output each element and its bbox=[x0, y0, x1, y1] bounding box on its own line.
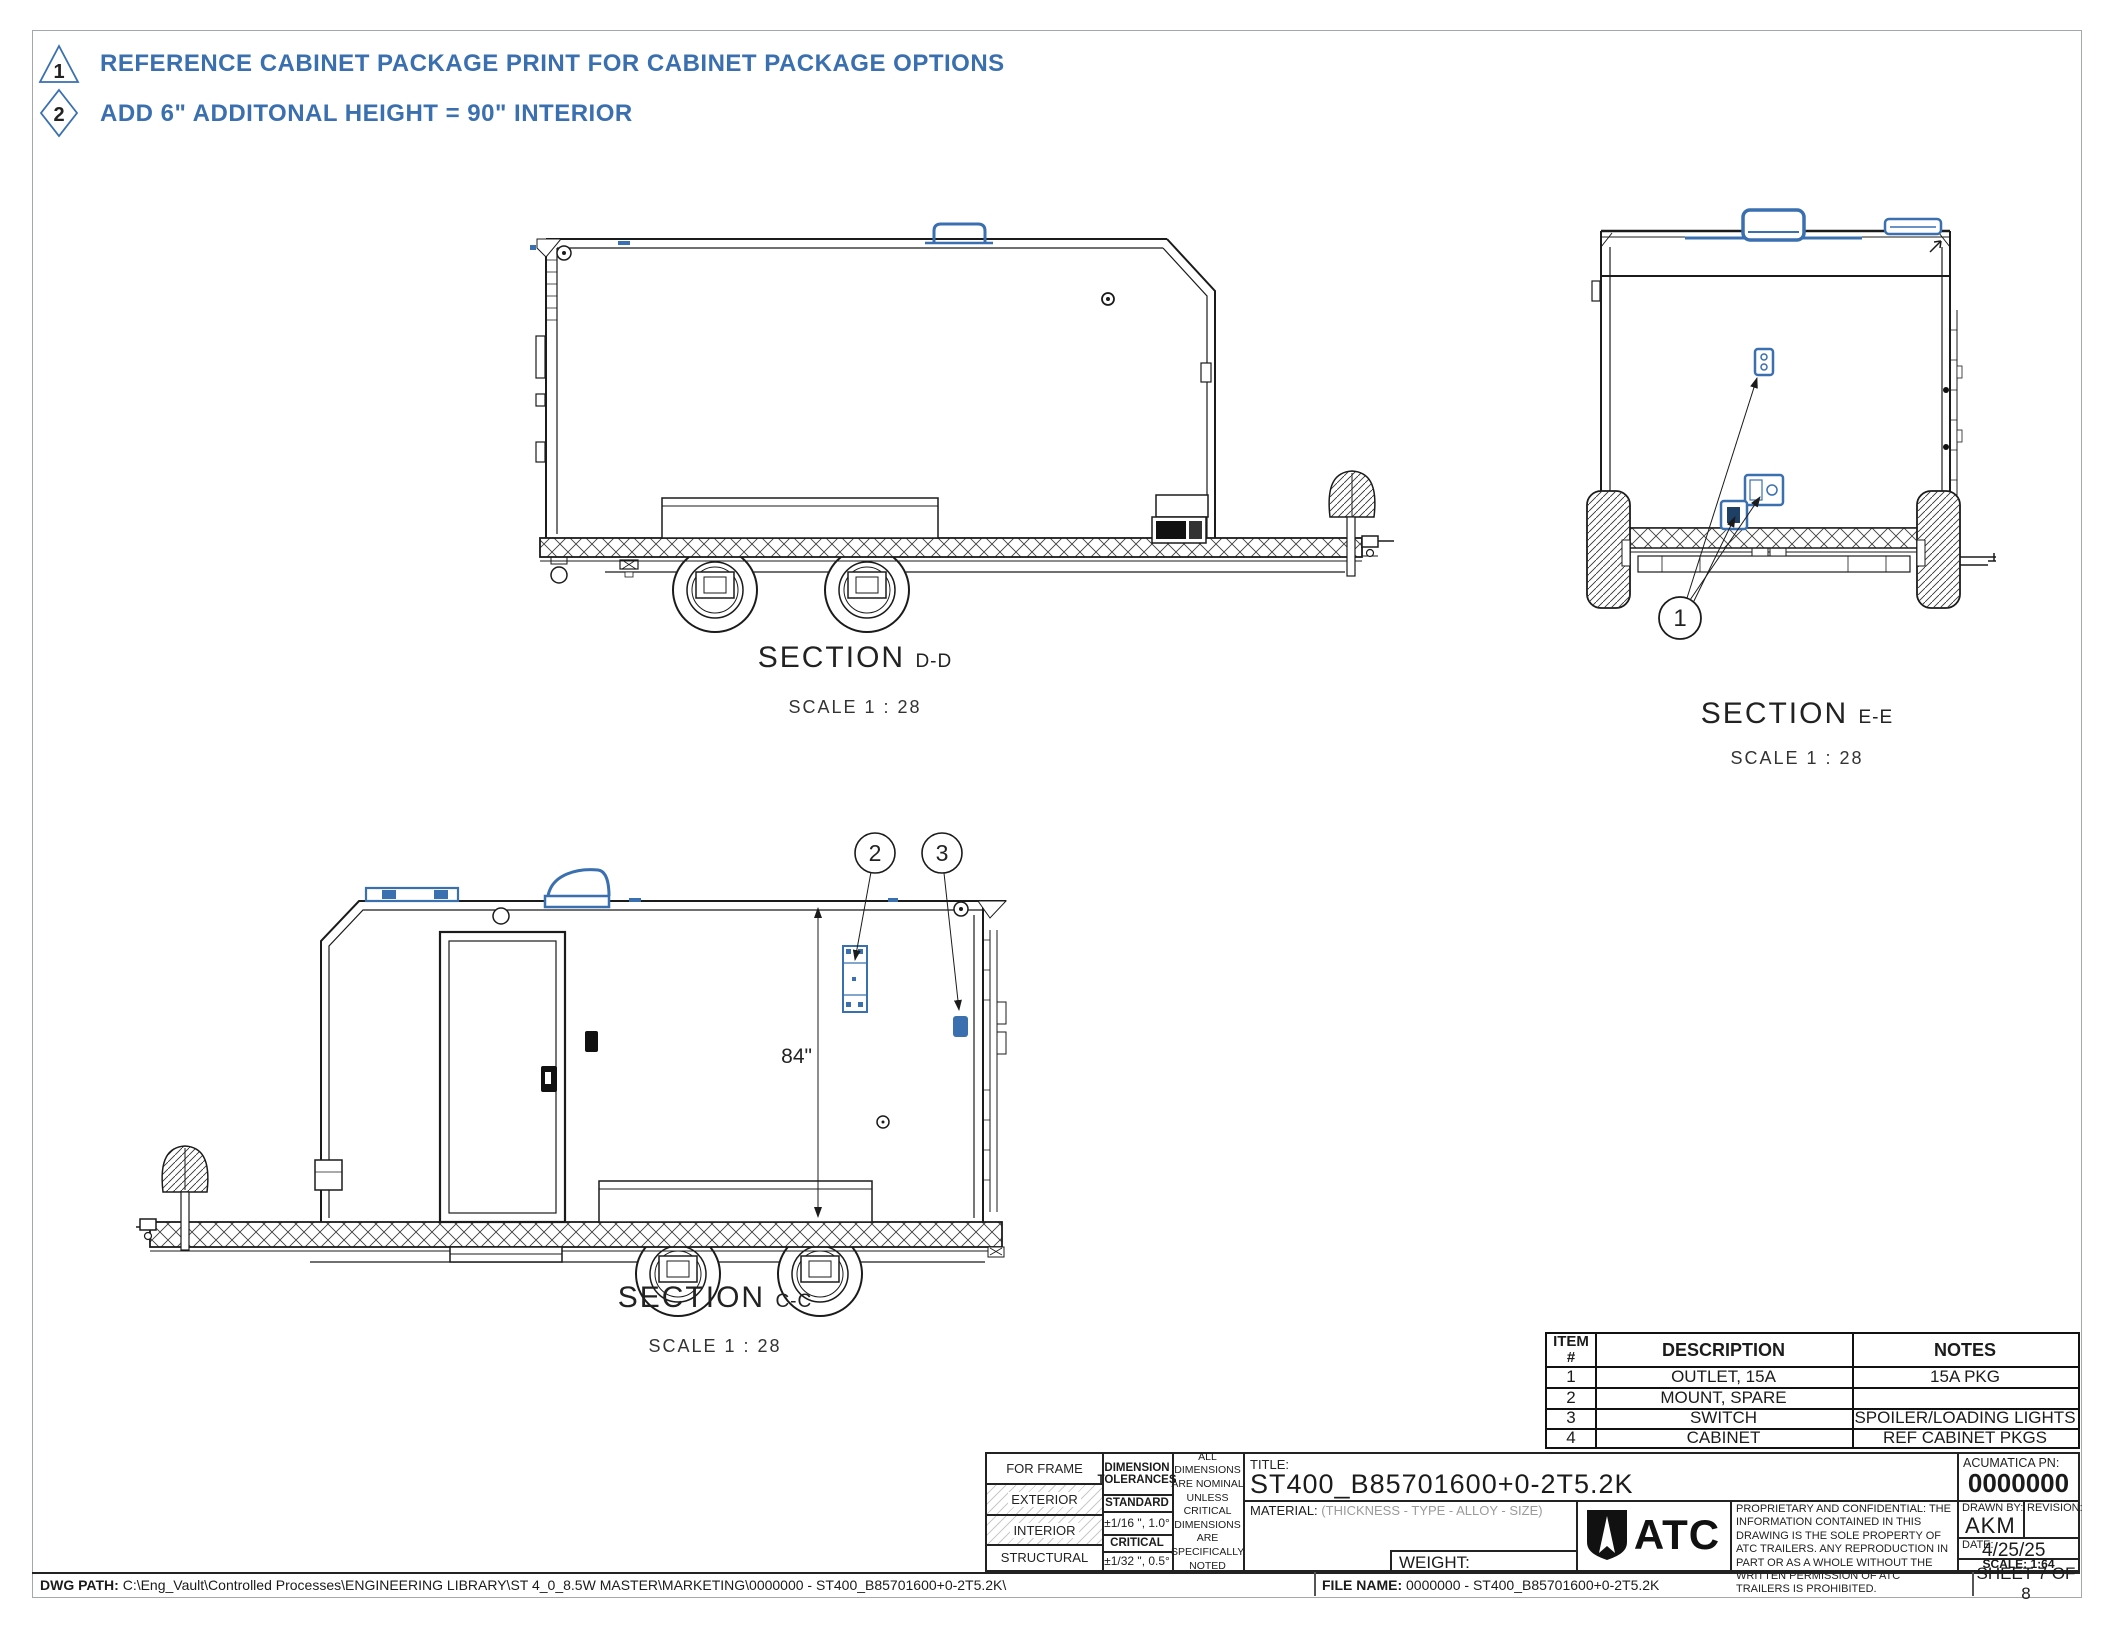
critical-tolerance-value: ±1/32 ", 0.5° bbox=[1102, 1551, 1172, 1570]
table-row-1-item: 1 bbox=[1547, 1366, 1595, 1387]
dimension-tolerances-header: DIMENSION TOLERANCES bbox=[1102, 1454, 1172, 1494]
axle-assembly bbox=[1610, 548, 1942, 572]
tongue-jack bbox=[1329, 471, 1375, 576]
section-ee-drawing: 1 bbox=[1565, 165, 2015, 660]
switch-icon bbox=[953, 1016, 968, 1037]
spare-mount-icon bbox=[843, 946, 867, 1012]
tolerance-row-for-frame: FOR FRAME bbox=[987, 1454, 1102, 1483]
flag-note-symbols: 1 2 bbox=[30, 38, 100, 148]
entry-door bbox=[440, 932, 565, 1262]
section-dd-label: SECTION D-D bbox=[735, 641, 975, 675]
table-row-4-item: 4 bbox=[1547, 1428, 1595, 1447]
item-table-header-notes: NOTES bbox=[1852, 1334, 2078, 1366]
floor-cabinet bbox=[599, 1181, 872, 1222]
section-cc-label: SECTION C-C bbox=[595, 1281, 835, 1315]
table-row-2-notes bbox=[1852, 1387, 2078, 1408]
atc-logo: ATC bbox=[1576, 1500, 1730, 1570]
nominal-dimensions-note: ALL DIMENSIONS ARE NOMINAL UNLESS CRITIC… bbox=[1172, 1454, 1243, 1570]
balloon-2-number: 2 bbox=[869, 840, 882, 866]
trailer-body-outline bbox=[546, 239, 1215, 538]
rear-caster-wheel bbox=[551, 567, 567, 583]
roof-cap-icon bbox=[1885, 219, 1941, 234]
right-wheel bbox=[1917, 491, 1960, 608]
rear-marker-light bbox=[530, 245, 536, 250]
material-row: MATERIAL: (THICKNESS - TYPE - ALLOY - SI… bbox=[1250, 1503, 1543, 1518]
title-block: FOR FRAME EXTERIOR INTERIOR STRUCTURAL D… bbox=[985, 1452, 2080, 1572]
proprietary-note: PROPRIETARY AND CONFIDENTIAL: THE INFORM… bbox=[1736, 1503, 1951, 1567]
leader-lines bbox=[855, 872, 959, 1010]
section-cc-scale: SCALE 1 : 28 bbox=[595, 1336, 835, 1357]
rear-door-frame bbox=[983, 930, 1006, 1257]
side-door-hardware bbox=[1950, 310, 1962, 520]
wall-outlet-icon bbox=[1755, 349, 1773, 375]
table-row-1-description: OUTLET, 15A bbox=[1595, 1366, 1852, 1387]
flag-note-1-number: 1 bbox=[53, 61, 64, 83]
file-name-value: 0000000 - ST400_B85701600+0-2T5.2K bbox=[1406, 1577, 1659, 1593]
corner-arrow-mark bbox=[1930, 241, 1941, 252]
standard-tolerance-label: STANDARD bbox=[1102, 1494, 1172, 1511]
front-wall-box bbox=[315, 1160, 342, 1190]
roof-vent-icon bbox=[925, 224, 993, 243]
loading-light-bar-icon bbox=[366, 888, 458, 901]
table-row-3-notes: SPOILER/LOADING LIGHTS bbox=[1852, 1408, 2078, 1428]
dwg-path-value: C:\Eng_Vault\Controlled Processes\ENGINE… bbox=[123, 1577, 1007, 1593]
table-row-4-notes: REF CABINET PKGS bbox=[1852, 1428, 2078, 1447]
section-ee-label: SECTION E-E bbox=[1677, 697, 1917, 731]
table-row-3-item: 3 bbox=[1547, 1408, 1595, 1428]
item-table: ITEM# DESCRIPTION NOTES 1 OUTLET, 15A 15… bbox=[1545, 1332, 2080, 1449]
roof-vent-open-icon bbox=[545, 870, 609, 907]
table-row-1-notes: 15A PKG bbox=[1852, 1366, 2078, 1387]
flag-note-2-text: ADD 6" ADDITONAL HEIGHT = 90" INTERIOR bbox=[100, 100, 633, 128]
critical-tolerance-label: CRITICAL bbox=[1102, 1534, 1172, 1551]
roof-vent-icon bbox=[1685, 210, 1862, 240]
floor-cabinet bbox=[662, 498, 938, 538]
table-row-2-description: MOUNT, SPARE bbox=[1595, 1387, 1852, 1408]
file-name-label: FILE NAME: bbox=[1322, 1577, 1402, 1593]
atc-shield-icon bbox=[1586, 1509, 1628, 1561]
floor-crosshatch bbox=[540, 538, 1362, 561]
atc-logo-text: ATC bbox=[1634, 1511, 1720, 1559]
material-label: MATERIAL: bbox=[1250, 1503, 1318, 1518]
drawing-sheet: 1 2 REFERENCE CABINET PACKAGE PRINT FOR … bbox=[0, 0, 2112, 1632]
material-value: (THICKNESS - TYPE - ALLOY - SIZE) bbox=[1321, 1503, 1542, 1518]
floor-crosshatch bbox=[150, 1222, 1002, 1251]
left-wheel bbox=[1587, 491, 1630, 608]
table-row-4-description: CABINET bbox=[1595, 1428, 1852, 1447]
dwg-path-label: DWG PATH: bbox=[40, 1577, 119, 1593]
electrical-box bbox=[1152, 495, 1208, 543]
file-name: FILE NAME: 0000000 - ST400_B85701600+0-2… bbox=[1322, 1577, 1962, 1593]
section-ee-scale: SCALE 1 : 28 bbox=[1677, 748, 1917, 769]
trailer-body-outline bbox=[321, 901, 1006, 1222]
drawn-by-value: AKM bbox=[1965, 1513, 2016, 1539]
stabilizer-jack bbox=[620, 560, 638, 577]
flag-note-1-text: REFERENCE CABINET PACKAGE PRINT FOR CABI… bbox=[100, 50, 1005, 78]
coupler bbox=[1362, 536, 1394, 557]
table-row-2-item: 2 bbox=[1547, 1387, 1595, 1408]
table-row-3-description: SWITCH bbox=[1595, 1408, 1852, 1428]
revision-label: REVISION: bbox=[2027, 1502, 2083, 1514]
item-table-header-item: ITEM# bbox=[1547, 1334, 1595, 1366]
wall-outlet-black bbox=[585, 1031, 598, 1052]
balloon-1-number: 1 bbox=[1673, 605, 1686, 632]
floor-crosshatch bbox=[1627, 528, 1921, 548]
acumatica-pn-value: 0000000 bbox=[1957, 1468, 2080, 1498]
balloon-3-number: 3 bbox=[936, 840, 949, 866]
tolerance-row-exterior: EXTERIOR bbox=[987, 1485, 1102, 1514]
flag-note-2-number: 2 bbox=[53, 104, 64, 126]
tolerance-row-structural: STRUCTURAL bbox=[987, 1544, 1102, 1570]
sheet-number: SHEET 7 OF 8 bbox=[1972, 1572, 2080, 1596]
tolerance-row-interior: INTERIOR bbox=[987, 1516, 1102, 1544]
standard-tolerance-value: ±1/16 ", 1.0° bbox=[1102, 1511, 1172, 1534]
section-cc-drawing: 84" 2 3 bbox=[105, 825, 1020, 1330]
height-dimension-text: 84" bbox=[781, 1045, 812, 1068]
title-value: ST400_B85701600+0-2T5.2K bbox=[1250, 1469, 1634, 1500]
dwg-path: DWG PATH: C:\Eng_Vault\Controlled Proces… bbox=[40, 1577, 1305, 1593]
item-table-header-description: DESCRIPTION bbox=[1595, 1334, 1852, 1366]
weight-label: WEIGHT: bbox=[1399, 1553, 1470, 1573]
roof-edge-light bbox=[618, 241, 630, 245]
floor-outlet-assembly bbox=[1721, 475, 1783, 529]
section-dd-scale: SCALE 1 : 28 bbox=[735, 697, 975, 718]
